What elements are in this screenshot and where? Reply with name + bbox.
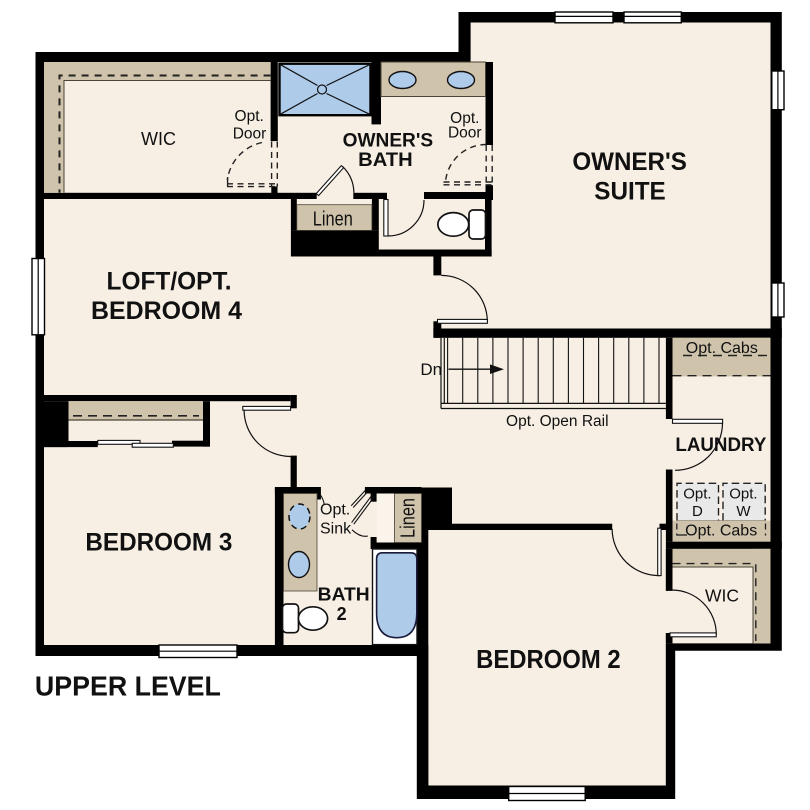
- svg-text:Door: Door: [233, 126, 267, 143]
- svg-text:BEDROOM 3: BEDROOM 3: [85, 529, 232, 557]
- svg-text:Linen: Linen: [398, 498, 420, 538]
- svg-text:Opt. Cabs: Opt. Cabs: [686, 340, 758, 357]
- svg-text:Opt.: Opt.: [235, 108, 264, 125]
- svg-text:LAUNDRY: LAUNDRY: [675, 435, 766, 456]
- svg-text:Opt.: Opt.: [683, 486, 711, 503]
- svg-text:Opt.: Opt.: [320, 502, 350, 519]
- svg-text:W: W: [736, 503, 751, 520]
- svg-text:Opt. Cabs: Opt. Cabs: [685, 522, 757, 539]
- svg-text:LOFT/OPT.: LOFT/OPT.: [107, 267, 232, 295]
- svg-text:BEDROOM 4: BEDROOM 4: [91, 297, 242, 325]
- svg-text:Opt.: Opt.: [729, 486, 757, 503]
- svg-text:WIC: WIC: [141, 129, 176, 149]
- svg-text:Linen: Linen: [313, 208, 353, 230]
- svg-text:D: D: [692, 503, 703, 520]
- svg-text:2: 2: [337, 604, 347, 624]
- svg-text:OWNER'S: OWNER'S: [572, 148, 687, 176]
- svg-text:WIC: WIC: [705, 585, 739, 605]
- svg-text:Door: Door: [448, 125, 482, 142]
- svg-text:Opt. Open Rail: Opt. Open Rail: [506, 413, 609, 430]
- svg-text:Sink: Sink: [320, 521, 352, 538]
- svg-text:BATH: BATH: [318, 584, 370, 604]
- svg-text:BEDROOM 2: BEDROOM 2: [476, 644, 621, 674]
- svg-text:Dn: Dn: [420, 360, 442, 379]
- svg-text:BATH: BATH: [358, 150, 413, 171]
- svg-text:OWNER'S: OWNER'S: [343, 131, 434, 152]
- svg-text:SUITE: SUITE: [594, 178, 666, 206]
- svg-text:UPPER LEVEL: UPPER LEVEL: [35, 670, 221, 701]
